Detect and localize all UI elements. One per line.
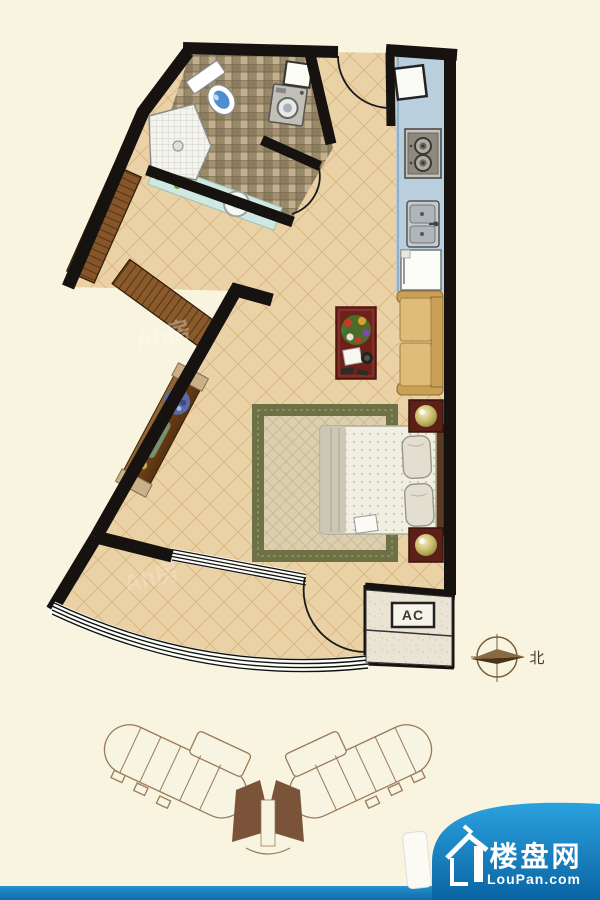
- sofa: [397, 291, 443, 395]
- loupan-logo: 楼盘网 LouPan.com: [432, 803, 600, 900]
- building-footprint: [91, 697, 445, 854]
- nightstand-top: [409, 400, 443, 432]
- nightstand-bottom: [409, 528, 443, 562]
- brand-text: 楼盘网: [489, 840, 582, 872]
- lamp-icon: [415, 534, 437, 556]
- counter-appliance: [394, 65, 427, 99]
- lamp-icon: [415, 405, 437, 427]
- floor-plan-canvas: AC 北 Ah房 Ah房: [0, 0, 600, 900]
- kitchen-sink: [407, 201, 439, 247]
- gas-stove: [405, 129, 441, 178]
- floor-plan-page: AC 北 Ah房 Ah房: [0, 0, 600, 900]
- compass: 北: [471, 634, 545, 682]
- kitchen-counter: [394, 57, 444, 292]
- bed-book: [354, 515, 378, 534]
- flower-vase: [341, 315, 371, 345]
- svg-text:Ah房: Ah房: [133, 315, 194, 356]
- domain-text: LouPan.com: [487, 871, 581, 887]
- blanket: [320, 426, 346, 534]
- ac-label: AC: [402, 607, 424, 623]
- double-bed: [320, 424, 444, 536]
- fridge: [401, 250, 441, 290]
- coffee-table: [336, 307, 376, 379]
- ac-platform: AC: [366, 590, 452, 666]
- compass-north-label: 北: [529, 650, 544, 667]
- washing-machine: [269, 84, 308, 126]
- partial-logo-card: [402, 831, 432, 889]
- notepad: [343, 348, 362, 366]
- shower-drain-icon: [173, 141, 183, 151]
